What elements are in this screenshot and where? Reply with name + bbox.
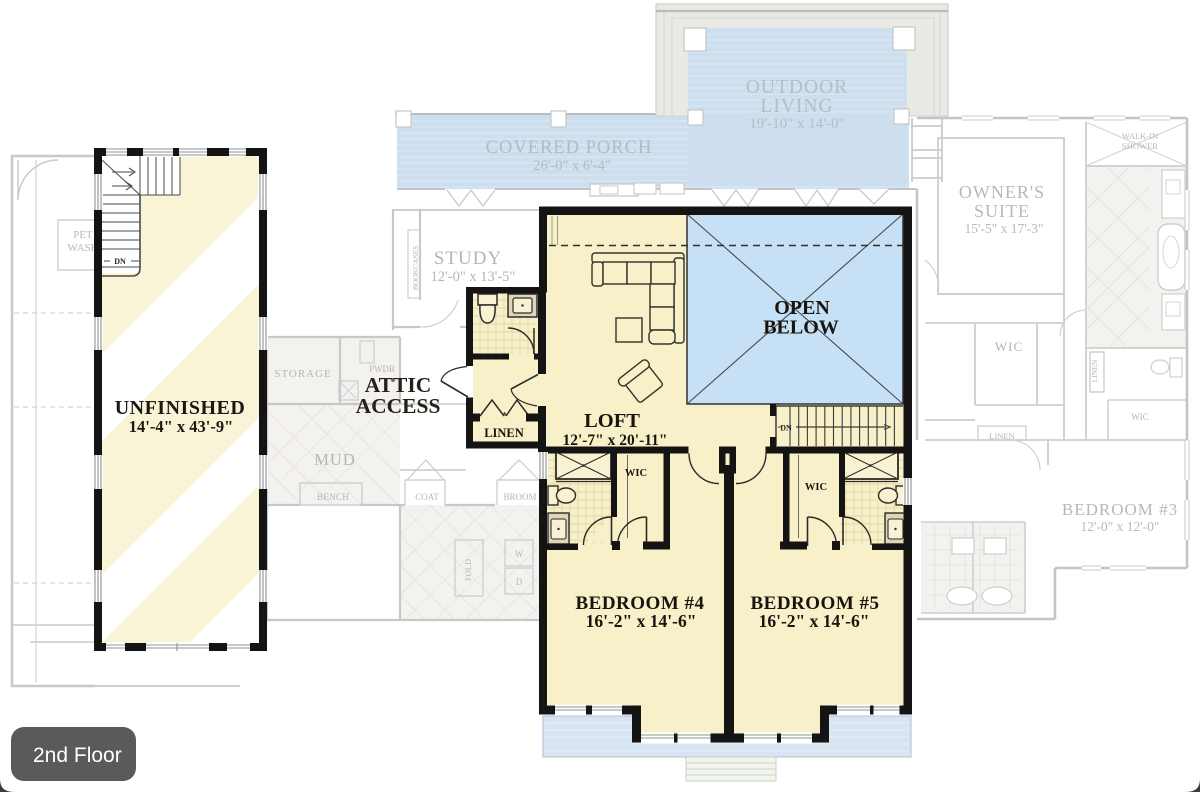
svg-text:BOOKCASES: BOOKCASES (411, 246, 420, 291)
svg-text:ACCESS: ACCESS (356, 394, 441, 418)
svg-text:BENCH: BENCH (317, 493, 349, 503)
svg-text:LINEN: LINEN (1090, 359, 1099, 382)
svg-text:OWNER'S: OWNER'S (959, 182, 1045, 202)
svg-text:SUITE: SUITE (974, 201, 1030, 221)
svg-text:26'-0" x 6'-4": 26'-0" x 6'-4" (533, 158, 611, 174)
svg-text:COAT: COAT (415, 492, 439, 502)
svg-text:WALK-IN: WALK-IN (1122, 131, 1158, 141)
svg-text:BELOW: BELOW (763, 317, 839, 339)
svg-text:PET: PET (73, 229, 93, 241)
svg-text:WIC: WIC (1131, 412, 1149, 422)
svg-text:12'-0" x 12'-0": 12'-0" x 12'-0" (1081, 519, 1160, 534)
svg-text:15'-5" x 17'-3": 15'-5" x 17'-3" (965, 221, 1044, 236)
svg-text:BEDROOM #3: BEDROOM #3 (1062, 500, 1178, 519)
svg-text:LINEN: LINEN (484, 426, 524, 440)
svg-text:LIVING: LIVING (760, 96, 833, 117)
svg-text:MUD: MUD (314, 450, 356, 469)
svg-text:COVERED PORCH: COVERED PORCH (486, 138, 653, 158)
svg-text:WIC: WIC (625, 468, 647, 479)
svg-text:WIC: WIC (805, 482, 827, 493)
svg-text:19'-10" x 14'-0": 19'-10" x 14'-0" (749, 116, 844, 132)
svg-text:STORAGE: STORAGE (274, 368, 332, 380)
svg-text:D: D (516, 577, 523, 587)
svg-text:BROOM: BROOM (503, 492, 536, 502)
svg-text:16'-2" x 14'-6": 16'-2" x 14'-6" (586, 611, 697, 631)
svg-text:16'-2" x 14'-6": 16'-2" x 14'-6" (759, 611, 870, 631)
svg-text:LOFT: LOFT (584, 410, 640, 432)
svg-text:12'-7" x 20'-11": 12'-7" x 20'-11" (562, 432, 667, 449)
svg-text:UNFINISHED: UNFINISHED (115, 397, 246, 419)
svg-text:12'-0" x 13'-5": 12'-0" x 13'-5" (431, 269, 516, 285)
svg-text:14'-4" x 43'-9": 14'-4" x 43'-9" (129, 417, 233, 436)
svg-text:W: W (515, 549, 524, 559)
svg-text:WASH: WASH (67, 242, 98, 254)
svg-text:2nd Floor: 2nd Floor (33, 744, 122, 767)
svg-text:FOLD: FOLD (463, 559, 473, 581)
svg-text:STUDY: STUDY (434, 248, 502, 269)
svg-text:OUTDOOR: OUTDOOR (746, 77, 848, 98)
svg-text:DN: DN (114, 257, 126, 266)
svg-text:SHOWER: SHOWER (1122, 141, 1158, 151)
svg-text:DN: DN (780, 424, 792, 433)
svg-text:WIC: WIC (995, 339, 1023, 354)
